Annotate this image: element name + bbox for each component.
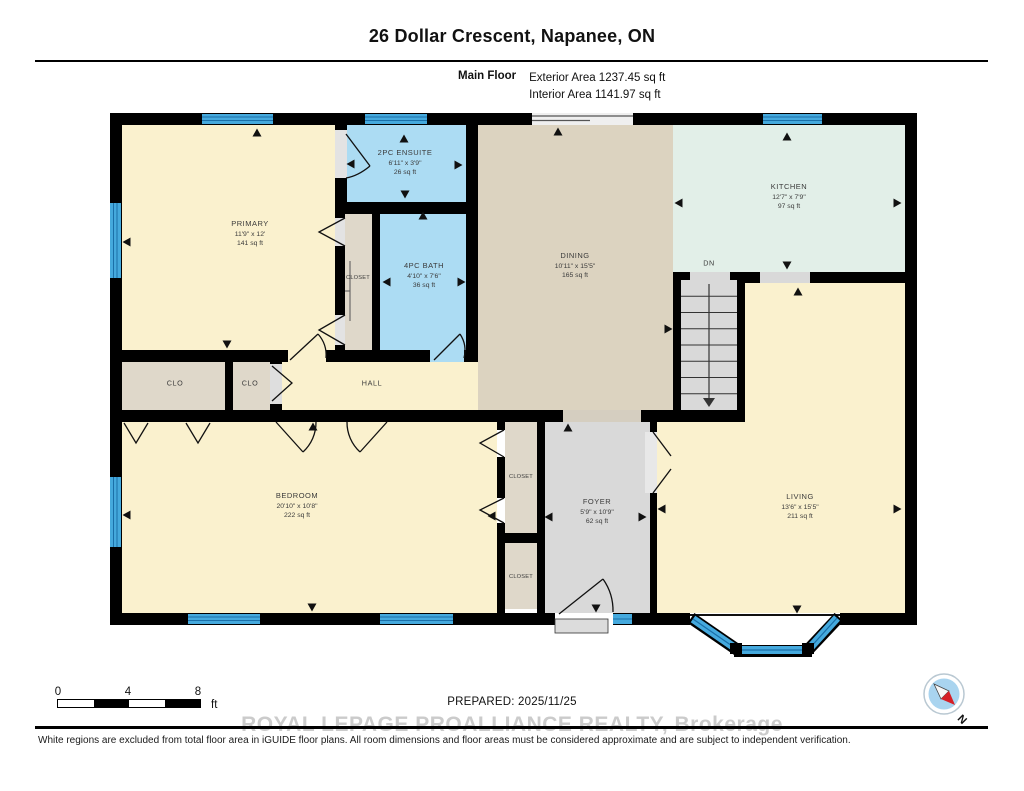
- label-primary-closet: CLOSET: [346, 275, 370, 281]
- room-name: DINING: [555, 251, 596, 262]
- room-area: 36 sq ft: [404, 281, 444, 291]
- floor-info: Main Floor Exterior Area 1237.45 sq ft I…: [458, 70, 665, 104]
- room-area: 97 sq ft: [771, 202, 807, 212]
- interior-area: Interior Area 1141.97 sq ft: [529, 87, 665, 104]
- room-dims: 6'11" x 3'9": [378, 159, 433, 169]
- floor-areas: Exterior Area 1237.45 sq ft Interior Are…: [529, 70, 665, 104]
- room-label-primary: PRIMARY 11'9" x 12' 141 sq ft: [231, 219, 269, 249]
- floor-plan: PRIMARY 11'9" x 12' 141 sq ft 2PC ENSUIT…: [100, 106, 920, 666]
- brokerage-watermark: ROYAL LEPAGE PROALLIANCE REALTY, Brokera…: [241, 713, 783, 737]
- room-area: 165 sq ft: [555, 271, 596, 281]
- exterior-area: Exterior Area 1237.45 sq ft: [529, 70, 665, 87]
- compass-icon: N: [915, 665, 979, 729]
- label-closet-top: CLOSET: [509, 474, 533, 480]
- room-name: LIVING: [781, 492, 818, 503]
- room-dims: 5'9" x 10'9": [580, 508, 614, 518]
- floorplan-page: 26 Dollar Crescent, Napanee, ON Main Flo…: [0, 0, 1024, 791]
- prepared-date: PREPARED: 2025/11/25: [0, 696, 1024, 708]
- room-label-foyer: FOYER 5'9" x 10'9" 62 sq ft: [580, 497, 614, 527]
- label-closet-bottom: CLOSET: [509, 574, 533, 580]
- room-dims: 20'10" x 10'8": [276, 502, 318, 512]
- room-area: 222 sq ft: [276, 511, 318, 521]
- bay-window: [690, 615, 840, 654]
- disclaimer-text: White regions are excluded from total fl…: [38, 735, 851, 746]
- room-dims: 11'9" x 12': [231, 230, 269, 240]
- room-area: 62 sq ft: [580, 517, 614, 527]
- room-name: KITCHEN: [771, 182, 807, 193]
- header-divider: [35, 60, 988, 62]
- label-clo-left: CLO: [167, 379, 184, 388]
- room-label-bedroom: BEDROOM 20'10" x 10'8" 222 sq ft: [276, 491, 318, 521]
- room-name: FOYER: [580, 497, 614, 508]
- room-dims: 13'6" x 15'5": [781, 503, 818, 513]
- room-dims: 4'10" x 7'6": [404, 272, 444, 282]
- page-title: 26 Dollar Crescent, Napanee, ON: [0, 26, 1024, 47]
- room-name: BEDROOM: [276, 491, 318, 502]
- room-label-ensuite: 2PC ENSUITE 6'11" x 3'9" 26 sq ft: [378, 148, 433, 178]
- label-hall: HALL: [362, 379, 382, 388]
- footer-divider: [35, 726, 988, 729]
- room-label-kitchen: KITCHEN 12'7" x 7'9" 97 sq ft: [771, 182, 807, 212]
- stairs: [681, 280, 737, 410]
- label-stairs-dn: DN: [703, 259, 715, 268]
- room-dims: 12'7" x 7'9": [771, 193, 807, 203]
- room-name: PRIMARY: [231, 219, 269, 230]
- floor-label: Main Floor: [458, 70, 516, 104]
- room-label-living: LIVING 13'6" x 15'5" 211 sq ft: [781, 492, 818, 522]
- compass-north-label: N: [955, 713, 969, 727]
- room-label-dining: DINING 10'11" x 15'5" 165 sq ft: [555, 251, 596, 281]
- room-area: 141 sq ft: [231, 239, 269, 249]
- room-dims: 10'11" x 15'5": [555, 262, 596, 272]
- room-name: 4PC BATH: [404, 261, 444, 272]
- room-area: 26 sq ft: [378, 168, 433, 178]
- room-label-bath: 4PC BATH 4'10" x 7'6" 36 sq ft: [404, 261, 444, 291]
- room-name: 2PC ENSUITE: [378, 148, 433, 159]
- room-area: 211 sq ft: [781, 512, 818, 522]
- label-clo-right: CLO: [242, 379, 259, 388]
